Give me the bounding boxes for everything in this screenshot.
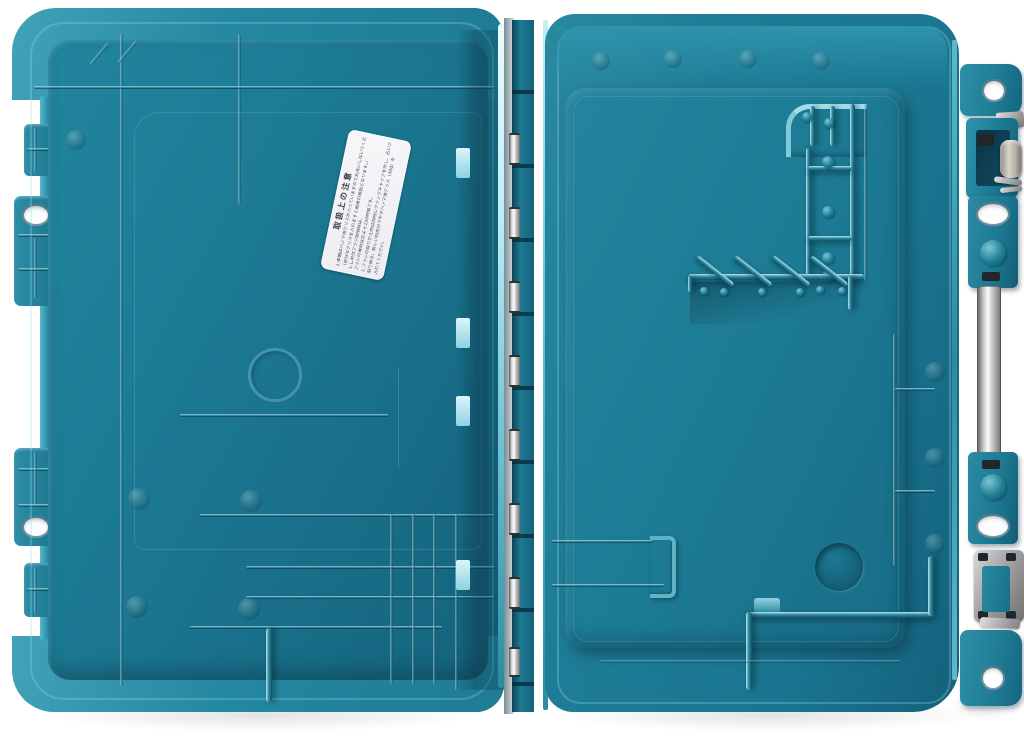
molded-rib [864,104,867,280]
molded-pin [700,287,708,295]
molded-rib [180,414,388,417]
hinge-slot [456,318,470,348]
mount-slot [982,460,1000,469]
molded-boss [128,488,150,510]
molded-pin [796,288,804,296]
molded-boss [238,598,260,620]
lid-circular-ring [248,348,302,402]
handle-rod [977,286,1001,460]
molded-rib [552,540,652,543]
molded-boss [739,50,757,68]
molded-rib [190,626,442,629]
latch-bottom-plate [980,617,1020,629]
hinge-slot [456,396,470,426]
molded-pin [758,288,766,296]
molded-pin [824,118,834,128]
molded-pin [822,252,834,264]
lid-step-wall [266,628,272,702]
circular-recess [815,543,863,591]
molded-boss [126,596,148,618]
molded-pin [720,288,728,296]
molded-rib [200,514,494,517]
molded-rib [895,490,935,493]
molded-rib [120,34,123,686]
latch-roller [1000,140,1022,178]
mount-oval-hole [976,514,1010,538]
fin-row-end-wall [688,276,692,292]
molded-pin [816,286,824,294]
hinge-pin [509,429,520,461]
molded-boss [925,448,945,468]
mount-oval-hole [976,202,1010,226]
molded-rib [895,388,935,391]
latch-catch-clip [978,134,994,146]
molded-boss [66,130,86,150]
base-right-wall-highlight [952,40,957,680]
molded-rib [390,514,393,684]
mount-button [980,474,1006,500]
ladder-rung [808,236,852,241]
retainer-clip [650,536,676,598]
lid-hinge-edge-shade [456,30,504,690]
mount-slot [982,272,1000,281]
molded-rib [412,514,415,684]
molded-rib [893,334,896,566]
molded-boss [812,52,830,70]
lid-raised-panel [134,112,482,550]
molded-boss [592,52,610,70]
partition-wall [746,612,752,690]
molded-rib [552,584,664,587]
molded-boss [925,534,945,554]
photo-open-tool-case: 取扱上の注意 1.本機はハンマ用グリスが入っていますので丸洗いしないでください。… [0,0,1024,742]
molded-boss [925,362,945,382]
molded-boss [240,490,262,512]
bit-holder-fin [810,106,815,146]
molded-rib [433,514,436,684]
hinge-pin [509,207,520,239]
fin-row-right-wall [848,276,853,310]
partition-wall [748,612,934,618]
hinge-pin [509,647,520,677]
molded-pin [822,206,834,218]
ear-hole [982,79,1006,102]
latch-bottom-inner [982,566,1010,612]
mount-button [980,240,1006,266]
molded-rib [600,660,900,663]
hinge-slot [456,560,470,590]
molded-pin [802,112,812,122]
molded-rib [398,368,400,468]
ear-hole [981,666,1005,690]
partition-wall [928,556,934,616]
hinge-pin [509,355,520,387]
molded-boss [664,50,682,68]
hinge-slot [456,148,470,178]
hinge-pin [509,503,520,535]
molded-pin [822,156,834,168]
hinge-pin [509,577,520,609]
fin-row-shadow [690,282,862,324]
hinge-pin [509,133,520,165]
molded-rib [34,86,494,89]
latch-stud [978,553,988,561]
ladder-rail-right [850,104,855,280]
molded-pin [838,287,846,295]
hinge-pin [509,281,520,313]
latch-stud [1006,553,1016,561]
